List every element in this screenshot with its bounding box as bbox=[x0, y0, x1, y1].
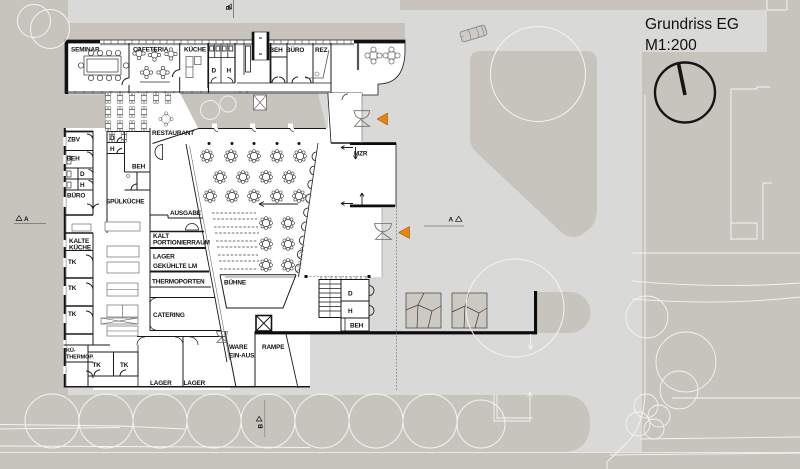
svg-text:TK: TK bbox=[120, 362, 129, 369]
svg-text:BÜRO: BÜRO bbox=[286, 45, 304, 54]
svg-text:THERMOP.: THERMOP. bbox=[66, 355, 94, 361]
svg-text:BEH: BEH bbox=[132, 164, 146, 171]
svg-text:M1:200: M1:200 bbox=[645, 37, 697, 54]
svg-text:TK: TK bbox=[93, 362, 102, 369]
svg-text:TK: TK bbox=[68, 311, 77, 318]
svg-text:BÜRO: BÜRO bbox=[67, 191, 85, 200]
svg-text:EIN-AUS: EIN-AUS bbox=[229, 353, 255, 360]
svg-text:BEH: BEH bbox=[67, 156, 81, 163]
svg-text:PORTIONIERRAUM: PORTIONIERRAUM bbox=[153, 240, 210, 247]
svg-text:BEH: BEH bbox=[270, 47, 284, 54]
svg-text:RAMPE: RAMPE bbox=[262, 344, 285, 351]
svg-text:D: D bbox=[80, 171, 85, 178]
svg-text:Grundriss EG: Grundriss EG bbox=[645, 16, 739, 33]
svg-text:H: H bbox=[80, 182, 85, 189]
svg-text:GEKÜHLTE LM: GEKÜHLTE LM bbox=[153, 261, 197, 270]
svg-text:KÜ-: KÜ- bbox=[66, 347, 76, 354]
svg-text:D: D bbox=[110, 135, 115, 142]
svg-text:LAGER: LAGER bbox=[184, 380, 206, 387]
svg-text:A: A bbox=[24, 216, 29, 223]
svg-text:B: B bbox=[258, 424, 265, 429]
svg-text:CAFETERIA: CAFETERIA bbox=[133, 47, 169, 54]
svg-text:BEH: BEH bbox=[350, 323, 364, 330]
svg-text:LAGER: LAGER bbox=[153, 254, 175, 261]
svg-text:H: H bbox=[348, 308, 353, 315]
svg-text:SPÜLKÜCHE: SPÜLKÜCHE bbox=[106, 197, 145, 206]
svg-text:KÜCHE: KÜCHE bbox=[184, 45, 207, 54]
svg-text:A: A bbox=[449, 217, 454, 224]
svg-text:KÜCHE: KÜCHE bbox=[69, 243, 92, 252]
svg-text:H: H bbox=[110, 146, 115, 153]
svg-text:D: D bbox=[348, 291, 353, 298]
svg-text:REZ: REZ bbox=[315, 47, 328, 54]
svg-text:MZR: MZR bbox=[354, 151, 368, 158]
svg-text:TK: TK bbox=[68, 259, 77, 266]
svg-text:ZBV: ZBV bbox=[68, 137, 81, 144]
svg-text:SEMINAR: SEMINAR bbox=[71, 47, 100, 54]
svg-text:BÜHNE: BÜHNE bbox=[224, 278, 247, 287]
svg-text:AUSGABE: AUSGABE bbox=[170, 210, 202, 217]
svg-text:WARE: WARE bbox=[229, 344, 248, 351]
svg-text:THERMOPORTEN: THERMOPORTEN bbox=[152, 279, 205, 286]
svg-text:CATERING: CATERING bbox=[153, 312, 185, 319]
svg-text:TK: TK bbox=[68, 285, 77, 292]
svg-text:H: H bbox=[227, 68, 232, 75]
svg-text:D: D bbox=[212, 68, 217, 75]
svg-text:LAGER: LAGER bbox=[150, 380, 172, 387]
svg-text:RESTAURANT: RESTAURANT bbox=[152, 130, 194, 137]
